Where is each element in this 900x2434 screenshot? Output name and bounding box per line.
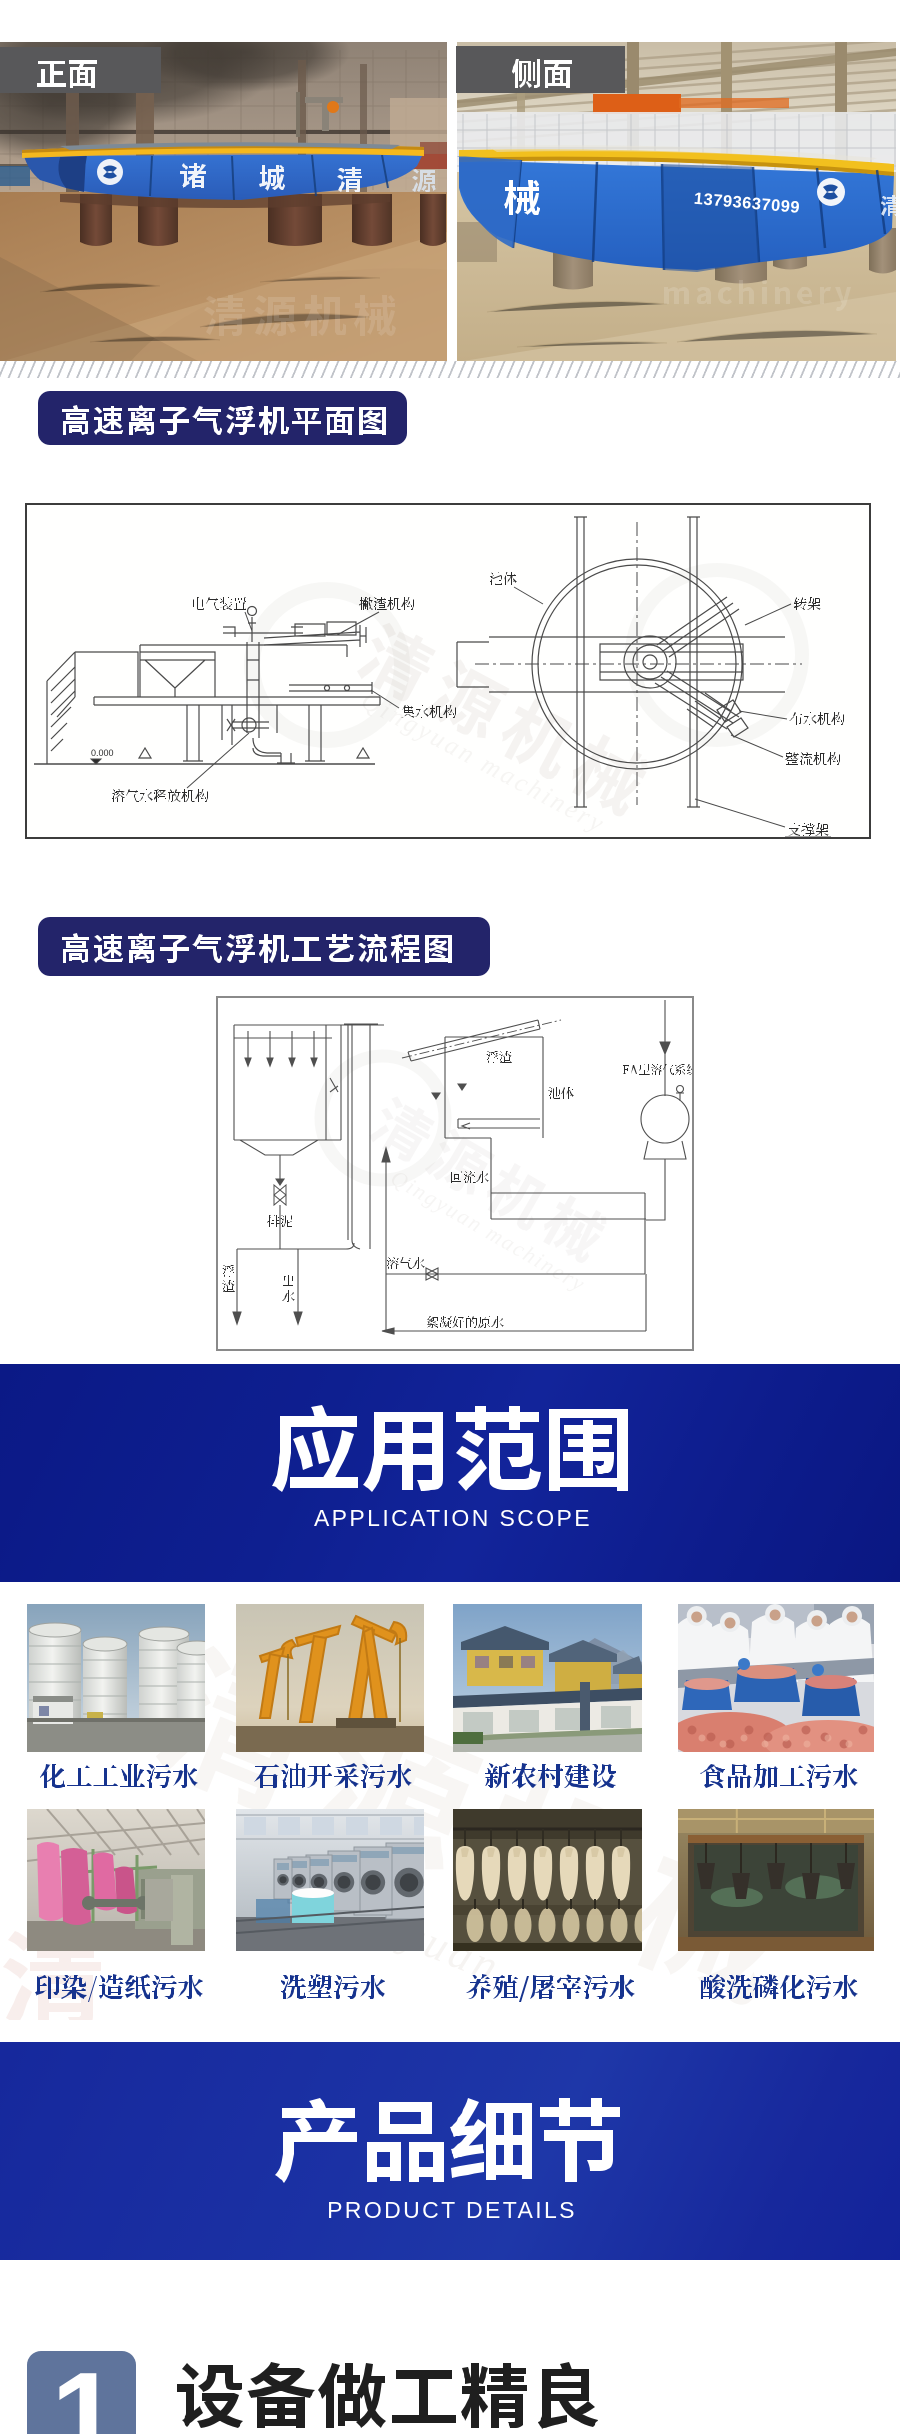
svg-text:Qingyuan machinery: Qingyuan machinery [356, 685, 610, 837]
svg-text:1: 1 [51, 2351, 119, 2434]
svg-text:0.000: 0.000 [91, 748, 114, 758]
svg-text:APPLICATION SCOPE: APPLICATION SCOPE [314, 1505, 592, 1531]
svg-text:PRODUCT DETAILS: PRODUCT DETAILS [327, 2197, 577, 2223]
svg-text:Qingyuan machinery: Qingyuan machinery [387, 1165, 591, 1297]
